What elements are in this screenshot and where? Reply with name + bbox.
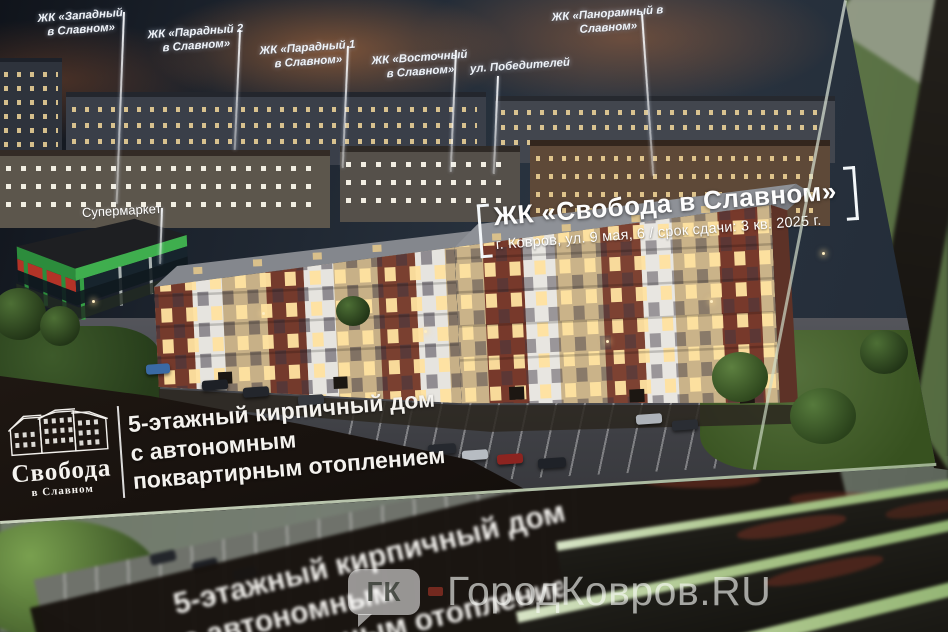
reflection: [885, 496, 948, 522]
map-label-line: ул. Победителей: [470, 57, 571, 78]
street-lamp: [424, 330, 427, 333]
watermark-logo-tail: [358, 614, 372, 627]
watermark-dash: [428, 587, 443, 596]
street-lamp: [710, 300, 713, 303]
car: [672, 419, 699, 431]
watermark-initials: ГК: [367, 576, 402, 608]
car: [538, 457, 567, 469]
map-label-zapadny: ЖК «Западный в Славном»: [37, 7, 124, 40]
watermark-site-name: ГородКовров.RU: [447, 568, 771, 615]
car: [146, 363, 171, 375]
map-label-pobediteley: ул. Победителей: [470, 57, 571, 78]
street-lamp: [822, 252, 825, 255]
street-lamp: [606, 340, 609, 343]
tree: [712, 352, 768, 402]
tree: [40, 306, 80, 346]
car: [243, 386, 270, 398]
map-label-paradny2: ЖК «Парадный 2 в Славном»: [147, 23, 245, 57]
tree: [860, 330, 908, 374]
photo-of-flyers: 5-этажный кирпичный дом с автономным пок…: [0, 0, 948, 632]
tree: [336, 296, 370, 326]
tree: [790, 388, 856, 444]
car: [636, 413, 663, 425]
street-lamp: [92, 300, 95, 303]
developer-logo: Свобода в Славном: [3, 404, 117, 500]
car: [497, 453, 524, 465]
logo-building-art: [5, 404, 112, 457]
car: [202, 379, 229, 391]
map-label-paradny1: ЖК «Парадный 1 в Славном»: [259, 39, 357, 73]
site-watermark: ГК ГородКовров.RU: [348, 568, 771, 615]
map-label-panoramny: ЖК «Панорамный в Славном»: [551, 4, 664, 39]
street-lamp: [262, 312, 265, 315]
watermark-logo: ГК: [348, 569, 420, 615]
